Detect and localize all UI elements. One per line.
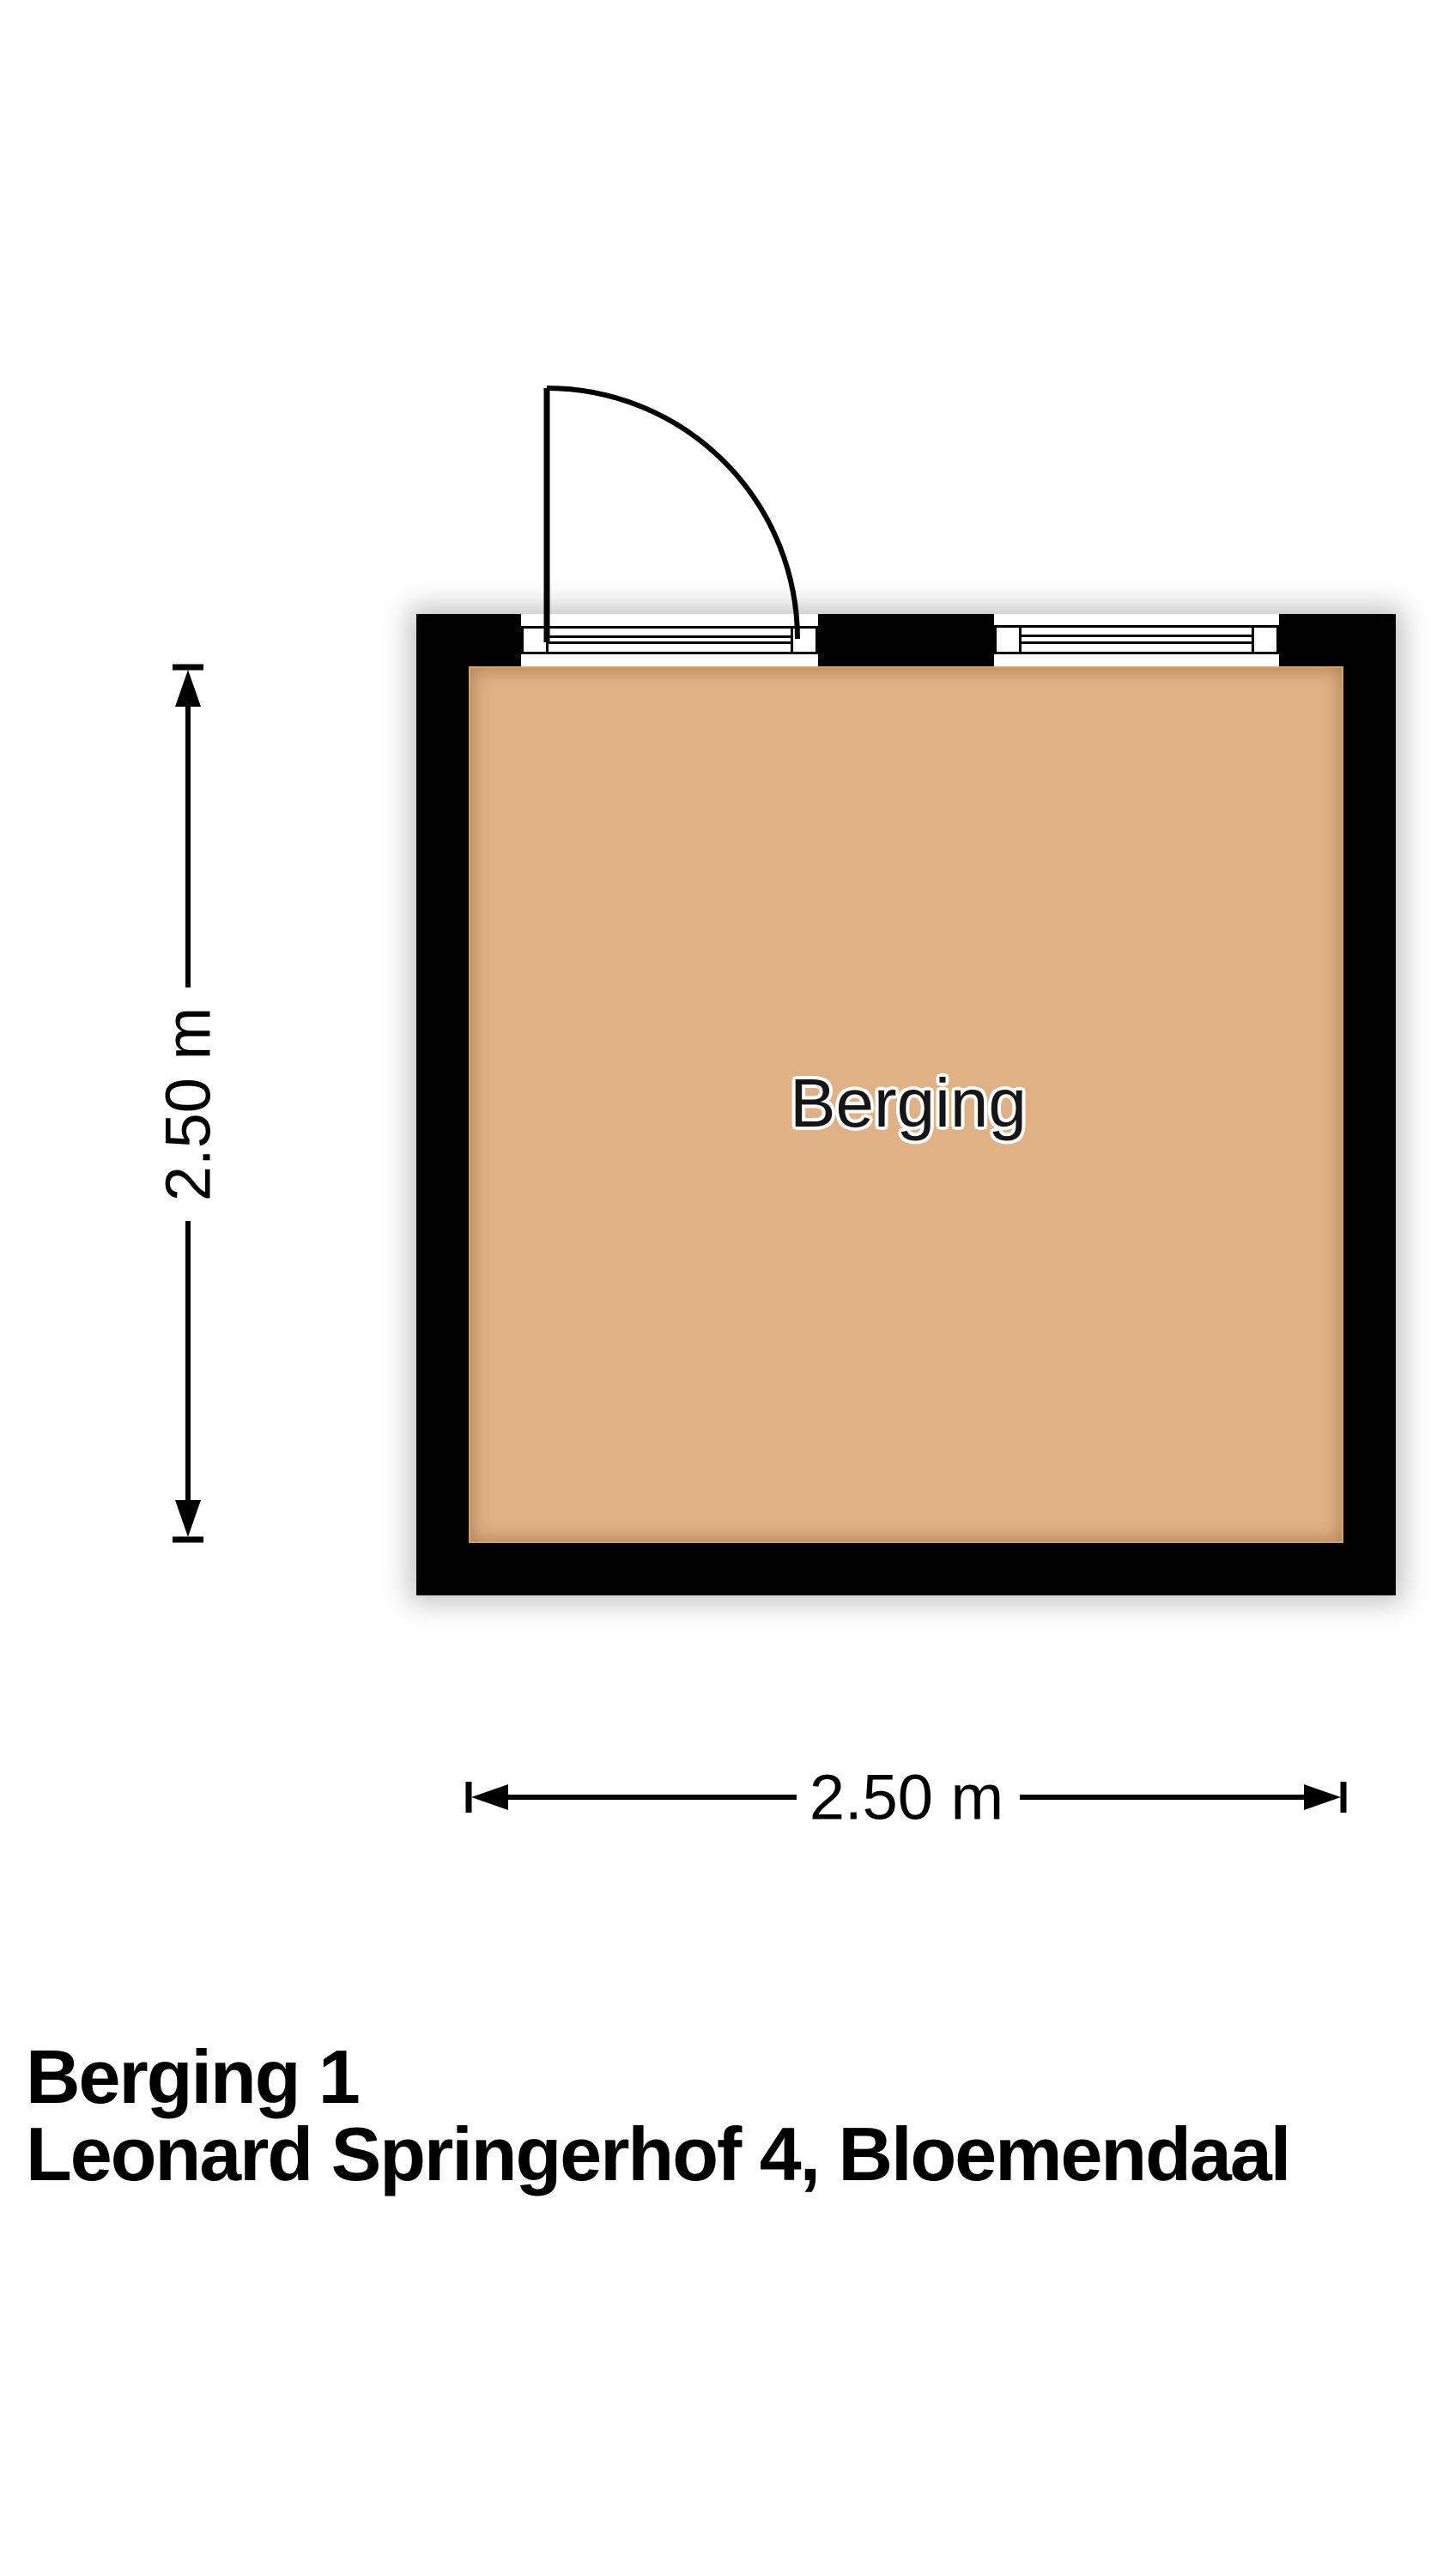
window-jamb-right	[1252, 628, 1276, 652]
door-swing-arc	[547, 388, 797, 639]
plan-address: Leonard Springerhof 4, Bloemendaal	[26, 2116, 1289, 2193]
plan-title: Berging 1	[26, 2038, 1289, 2116]
door-threshold-lines	[549, 629, 791, 652]
horizontal-dimension-label: 2.50 m	[801, 1761, 1012, 1834]
door-jamb-right	[791, 629, 815, 652]
window-glazing-lines	[1022, 628, 1252, 652]
door-jamb-left	[524, 629, 549, 652]
door-threshold	[521, 626, 818, 654]
room-label: Berging	[790, 1064, 1027, 1143]
vertical-dimension-label: 2.50 m	[152, 999, 225, 1210]
window-jamb-left	[997, 628, 1022, 652]
window-symbol	[994, 625, 1279, 654]
floorplan-page: Berging 2.50 m 2.50 m Berging 1 Leonard …	[0, 0, 1449, 2576]
plan-title-block: Berging 1 Leonard Springerhof 4, Bloemen…	[26, 2038, 1289, 2193]
